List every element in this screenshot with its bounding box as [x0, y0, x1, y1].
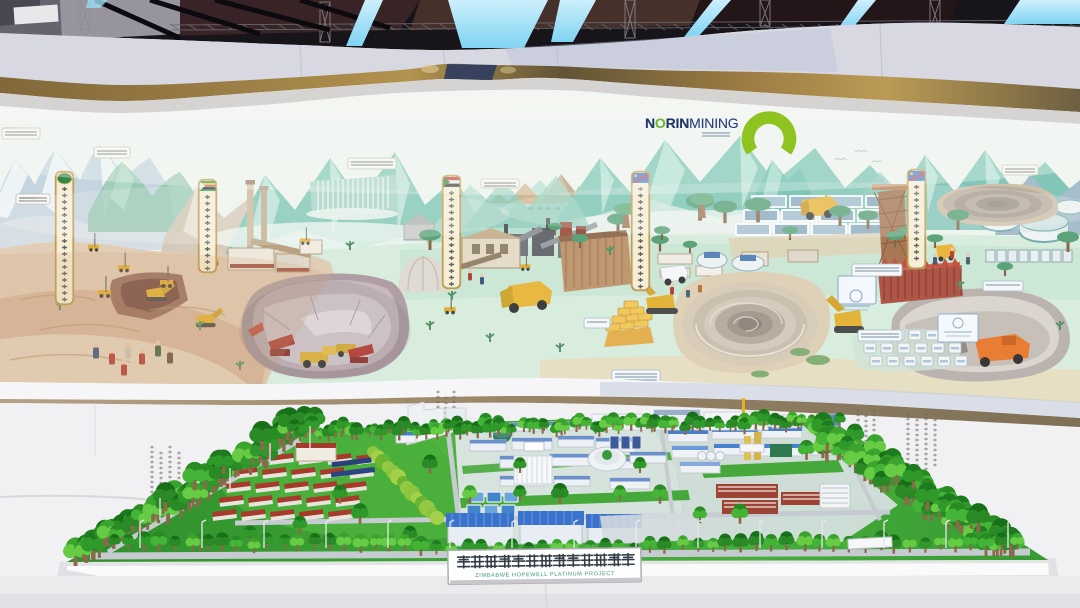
svg-text:NORINMINING: NORINMINING	[645, 115, 739, 131]
